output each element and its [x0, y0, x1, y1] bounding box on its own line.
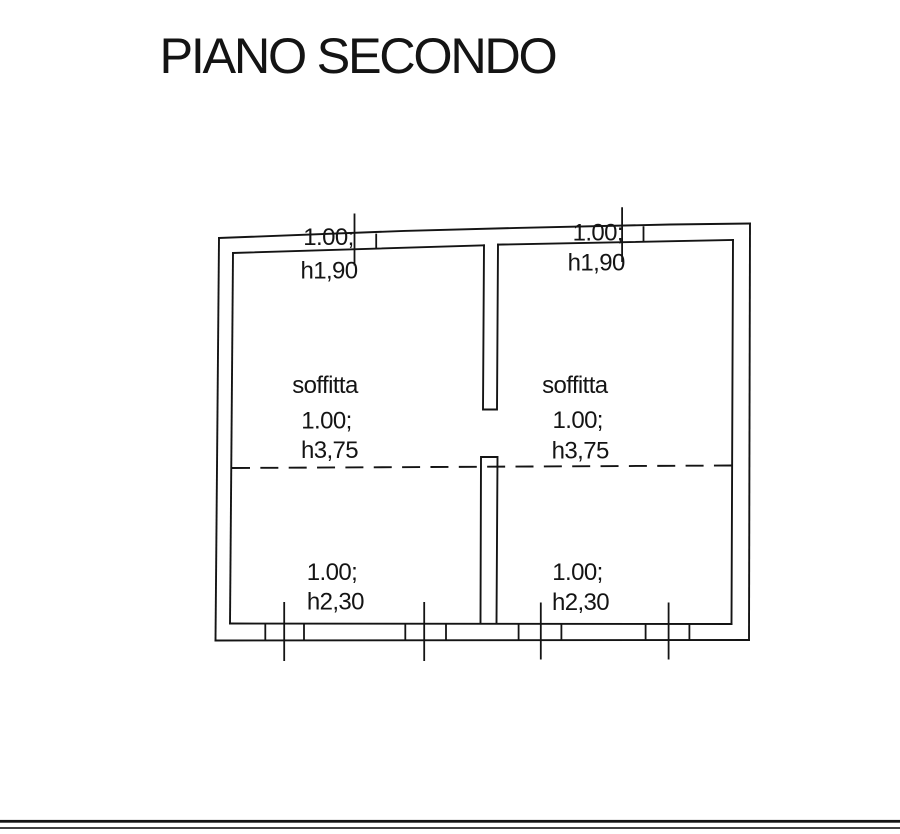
svg-text:h3,75: h3,75	[301, 437, 358, 464]
svg-text:h2,30: h2,30	[552, 589, 609, 616]
svg-text:1.00;: 1.00;	[552, 559, 602, 586]
svg-text:h3,75: h3,75	[552, 438, 609, 465]
svg-text:h2,30: h2,30	[307, 589, 364, 616]
svg-text:soffitta: soffitta	[292, 372, 359, 399]
svg-text:1.00;: 1.00;	[573, 219, 623, 246]
svg-text:1.00;: 1.00;	[307, 559, 357, 586]
svg-text:h1,90: h1,90	[568, 249, 625, 276]
svg-text:1.00;: 1.00;	[301, 407, 351, 434]
svg-text:h1,90: h1,90	[300, 258, 357, 285]
svg-text:PIANO SECONDO: PIANO SECONDO	[160, 27, 556, 84]
svg-text:1.00;: 1.00;	[553, 407, 603, 434]
svg-text:soffitta: soffitta	[542, 372, 609, 399]
svg-text:1.00;: 1.00;	[303, 224, 353, 251]
